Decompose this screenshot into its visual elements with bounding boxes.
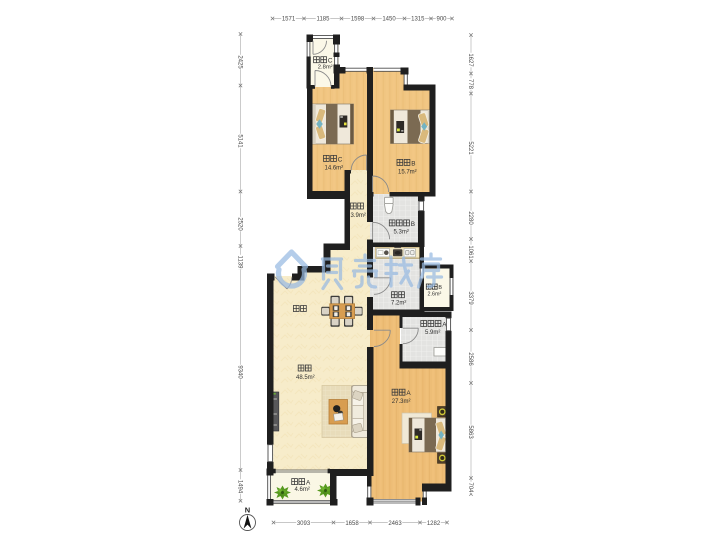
svg-text:1598: 1598 bbox=[351, 17, 365, 23]
svg-text:2463: 2463 bbox=[388, 521, 402, 527]
svg-text:9340: 9340 bbox=[237, 365, 243, 379]
svg-text:704: 704 bbox=[467, 482, 473, 493]
svg-text:B: B bbox=[438, 285, 442, 291]
svg-text:5141: 5141 bbox=[237, 134, 243, 148]
svg-text:3.9m²: 3.9m² bbox=[351, 213, 366, 219]
svg-text:A: A bbox=[406, 390, 411, 397]
svg-text:5863: 5863 bbox=[467, 425, 473, 439]
svg-text:2280: 2280 bbox=[467, 211, 473, 225]
svg-text:1571: 1571 bbox=[282, 17, 296, 23]
svg-text:48.5m²: 48.5m² bbox=[296, 375, 315, 381]
svg-text:B: B bbox=[411, 160, 415, 167]
svg-text:778: 778 bbox=[467, 79, 473, 90]
svg-text:1282: 1282 bbox=[427, 521, 441, 527]
svg-text:1627: 1627 bbox=[467, 53, 473, 67]
svg-text:2.6m²: 2.6m² bbox=[428, 292, 442, 298]
svg-text:3379: 3379 bbox=[467, 291, 473, 305]
svg-text:5.9m²: 5.9m² bbox=[425, 330, 440, 336]
svg-text:5.3m²: 5.3m² bbox=[394, 230, 409, 236]
svg-text:1315: 1315 bbox=[411, 17, 425, 23]
svg-text:2586: 2586 bbox=[467, 352, 473, 366]
svg-text:5221: 5221 bbox=[467, 141, 473, 155]
svg-text:A: A bbox=[306, 480, 311, 487]
svg-text:1061: 1061 bbox=[467, 245, 473, 259]
svg-text:1450: 1450 bbox=[382, 17, 396, 23]
svg-text:7.2m²: 7.2m² bbox=[391, 301, 406, 307]
svg-text:B: B bbox=[411, 221, 415, 228]
svg-text:2425: 2425 bbox=[237, 55, 243, 69]
svg-text:14.6m²: 14.6m² bbox=[325, 166, 344, 172]
svg-text:1658: 1658 bbox=[345, 521, 359, 527]
svg-text:2520: 2520 bbox=[237, 217, 243, 231]
svg-text:3093: 3093 bbox=[297, 521, 311, 527]
svg-text:900: 900 bbox=[436, 17, 447, 23]
svg-text:N: N bbox=[245, 506, 250, 515]
svg-text:1494: 1494 bbox=[237, 480, 243, 494]
svg-text:15.7m²: 15.7m² bbox=[398, 169, 417, 175]
svg-text:27.3m²: 27.3m² bbox=[392, 399, 411, 405]
svg-text:1185: 1185 bbox=[317, 17, 331, 23]
svg-text:C: C bbox=[338, 156, 343, 163]
svg-text:4.6m²: 4.6m² bbox=[295, 487, 310, 493]
svg-text:1139: 1139 bbox=[237, 256, 243, 270]
svg-text:A: A bbox=[442, 321, 447, 328]
svg-text:2.8m²: 2.8m² bbox=[318, 64, 333, 70]
